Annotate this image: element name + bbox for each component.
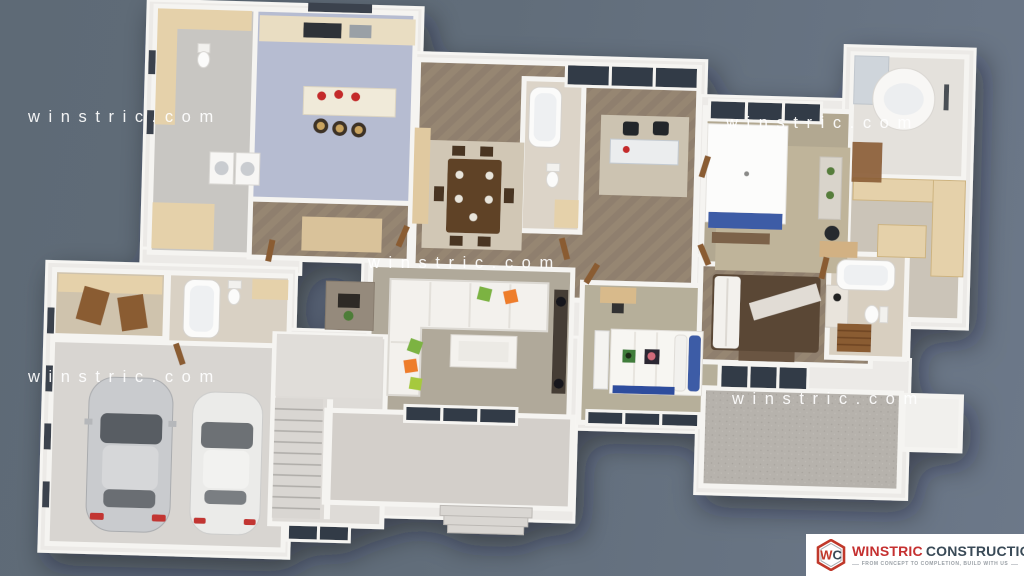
bed2-pillow-white [674, 335, 688, 391]
closet-shelf [58, 274, 162, 295]
office-chair-2 [653, 121, 669, 135]
glass-desk [610, 139, 679, 165]
watermark-text: w i n s t r i c . c o m [731, 390, 919, 408]
closet-island [877, 225, 926, 258]
window-stair-wall [287, 524, 349, 542]
tagline-rule-left [852, 564, 859, 565]
car-silver-windshield [100, 413, 163, 445]
brand-word-secondary: CONSTRUCTION [926, 543, 1024, 559]
office [599, 115, 689, 197]
tagline-text: FROM CONCEPT TO COMPLETION, BUILD WITH U… [862, 561, 1009, 567]
stair-landing-upper [275, 334, 383, 399]
car-white [189, 391, 263, 535]
wood-rack [851, 142, 882, 183]
cooktop [303, 22, 341, 38]
window-porch [405, 405, 517, 424]
front-steps [439, 505, 532, 535]
bed2-pillow-blue [688, 335, 702, 391]
watermark-text: w i n s t r i c . c o m [725, 114, 913, 132]
car-silver-roof [102, 445, 159, 491]
office-chair [623, 121, 639, 135]
wc-hexagon-icon: WC [816, 539, 846, 571]
brand-word-primary: WINSTRIC [852, 543, 923, 559]
bed3-nightstand [825, 285, 848, 328]
closet-cabinet-right [931, 180, 966, 277]
bed-blue-throw [708, 212, 782, 230]
floor-plan-render: w i n s t r i c . c o m w i n s t r i c … [0, 0, 1024, 576]
bed2-chair [612, 303, 624, 313]
window-kitchen-top [308, 3, 372, 14]
svg-text:WC: WC [820, 548, 842, 563]
stair-flight [272, 398, 323, 519]
bath2-basin [189, 285, 214, 332]
mud-bench [151, 202, 214, 250]
render-stage: w i n s t r i c . c o m w i n s t r i c … [0, 0, 1024, 576]
bath3-basin [844, 265, 889, 286]
entry-porch-floor [324, 410, 572, 509]
window-patio [720, 364, 809, 390]
tail-light [90, 513, 104, 520]
powder-toilet [197, 43, 210, 67]
tv-console [551, 290, 568, 394]
watermark-text: w i n s t r i c . c o m [27, 368, 215, 386]
coffee-table-inset [458, 341, 509, 362]
tail-light [152, 514, 166, 521]
bath3-wood-mat [837, 323, 872, 352]
brand-logo-card: WC WINSTRICCONSTRUCTION FROM CONCEPT TO … [806, 534, 1024, 576]
bath-vanity [554, 199, 579, 228]
dryer [235, 153, 260, 186]
plant-table [818, 157, 842, 220]
tail-light [244, 519, 256, 525]
bed2-desk [600, 287, 636, 304]
toilet [546, 163, 560, 187]
dining-area [421, 140, 524, 251]
tail-light [194, 518, 206, 524]
laundry-cabinet-top [157, 8, 252, 31]
bath2-vanity [252, 279, 289, 300]
hall-cabinet-doors [412, 128, 431, 224]
car-white-windshield [201, 422, 254, 449]
watermark-text: w i n s t r i c . c o m [27, 108, 215, 126]
bed3-bench [738, 351, 794, 363]
bed-bench [712, 232, 770, 245]
shower-fixture [943, 84, 949, 110]
kitchen-sink [349, 25, 371, 39]
master-desk [819, 241, 857, 258]
washer [209, 152, 234, 185]
bathtub-basin [533, 93, 556, 142]
car-white-roof [203, 450, 250, 489]
brand-tagline: FROM CONCEPT TO COMPLETION, BUILD WITH U… [852, 561, 1018, 567]
window-bedroom2 [587, 410, 699, 427]
watermark-text: w i n s t r i c . c o m [367, 254, 555, 272]
hall-ottoman [325, 281, 374, 330]
car-silver [81, 376, 177, 533]
bath3-toilet [864, 305, 887, 324]
kitchen-island [303, 86, 396, 117]
pantry-door-panel [301, 216, 382, 252]
tagline-rule-right [1011, 564, 1018, 565]
brand-wordmark: WINSTRICCONSTRUCTION FROM CONCEPT TO COM… [852, 543, 1018, 567]
dining-table [446, 158, 502, 233]
house-model [39, 0, 976, 576]
closet-door-open-2 [117, 294, 148, 331]
car-silver-rear-window [103, 489, 155, 508]
car-white-rear-window [204, 490, 246, 505]
bed2-dresser [594, 331, 610, 389]
bath2-toilet [228, 280, 242, 304]
window-dining [566, 64, 699, 90]
